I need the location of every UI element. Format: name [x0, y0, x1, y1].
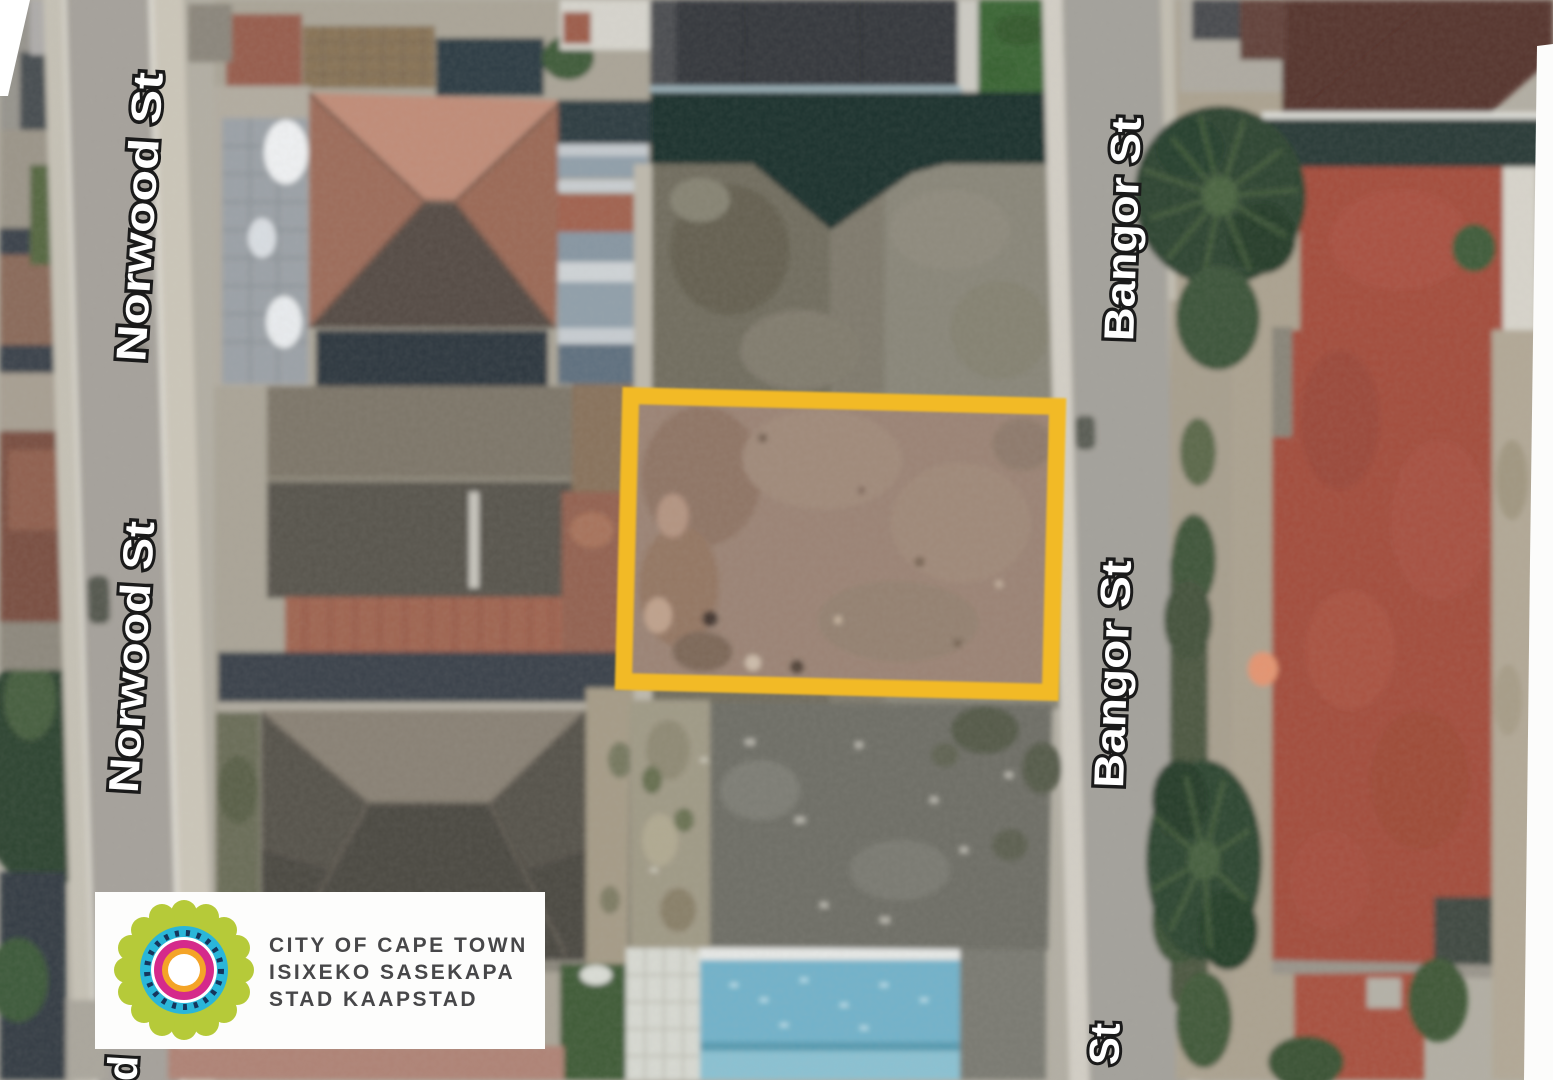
- svg-text:ISIXEKO SASEKAPA: ISIXEKO SASEKAPA: [269, 961, 515, 984]
- svg-text:CITY OF CAPE TOWN: CITY OF CAPE TOWN: [269, 934, 528, 957]
- svg-text:d: d: [98, 1054, 146, 1080]
- svg-text:Bangor St: Bangor St: [1085, 559, 1140, 789]
- svg-text:STAD KAAPSTAD: STAD KAAPSTAD: [269, 988, 478, 1011]
- svg-text:St: St: [1080, 1022, 1128, 1066]
- svg-text:Bangor St: Bangor St: [1095, 116, 1150, 342]
